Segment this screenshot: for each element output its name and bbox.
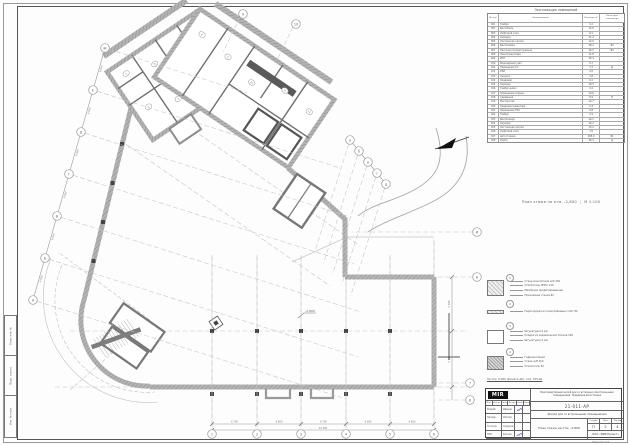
schedule-table: № пом.НаименованиеПлощадь, м²Категория п… [487, 13, 625, 143]
table-row: 026Лифтовой холл7,6 [488, 129, 624, 133]
table-row: 023Венткамера24,1 [488, 117, 624, 121]
svg-text:6: 6 [433, 432, 435, 436]
table-row: 020Кладовая инвентаря5,3 [488, 104, 624, 108]
stage-values: П24 [588, 424, 623, 430]
signature-row: Н.контр.Сидоров [486, 423, 530, 431]
table-row: 008Электрощитовая11,8 [488, 52, 624, 56]
table-row: 002Вестибюль15,6 [488, 26, 624, 30]
table-row: 028Рампа96,3Д [488, 138, 624, 142]
table-row: 007Насосная пожаротушения26,5В4 [488, 48, 624, 52]
svg-text:И: И [476, 230, 479, 234]
legend-swatch [487, 310, 504, 314]
svg-text:6 600: 6 600 [276, 421, 283, 424]
table-row: 022Тамбур2,9 [488, 112, 624, 116]
legend-labels: Штукатурка 5 ммКладка из керамических бл… [510, 329, 573, 343]
svg-text:1: 1 [211, 432, 213, 436]
table-row: 012КУИ4,5 [488, 69, 624, 73]
legend-swatch [487, 280, 504, 296]
plan-title-text: План этажа на отм. -2,800 [522, 200, 577, 204]
table-row: 019Мастерская14,7 [488, 99, 624, 103]
table-row: 018Серверная8,9В [488, 95, 624, 99]
title-block: MIR Изм.Кол.учЛист№ док.Подп.Дата Разраб… [485, 388, 622, 438]
svg-text:6 000: 6 000 [87, 107, 92, 115]
table-row: 021Помещение ТБО6,8 [488, 108, 624, 112]
table-row: 014Кладовая6,1 [488, 78, 624, 82]
table-row: 006Венткамера38,2В4 [488, 43, 624, 47]
svg-text:5 600: 5 600 [448, 355, 451, 362]
legend-item-number: 2 [506, 300, 514, 308]
separator: | [580, 200, 581, 204]
svg-text:6 000: 6 000 [75, 149, 80, 157]
side-stamp-cell: Инв. № подл. [5, 396, 16, 436]
table-row: 027Автостоянка485,0В1 [488, 134, 624, 138]
signature-row: ГИПКозлов [486, 431, 530, 439]
company-logo: MIR [488, 391, 508, 400]
svg-text:Ж: Ж [103, 46, 107, 50]
drawing-sheet: 1234567 89101112 [0, 0, 630, 445]
legend-labels: ГидроизоляцияСтена ж/б 200Утеплитель 50 [510, 355, 545, 369]
signature-rows: Разраб.ИвановПровер.ПетровН.контр.Сидоро… [486, 406, 530, 439]
svg-text:5: 5 [389, 432, 391, 436]
svg-text:6 750: 6 750 [320, 421, 327, 424]
beam-profile [438, 313, 460, 360]
svg-text:7: 7 [469, 381, 471, 385]
signature-row: Разраб.Иванов [486, 406, 530, 414]
project-description: Многоквартирный жилой дом со встроенно-п… [531, 389, 623, 402]
side-stamp-cell: Взам. инв. № [5, 316, 16, 356]
object-name: Жилой дом со встроенными помещениями [531, 411, 623, 419]
svg-text:6 600: 6 600 [409, 421, 416, 424]
legend-labels: Перегородка из пазогребневых плит 80 [510, 309, 578, 314]
table-row: 016Тамбур-шлюз4,2 [488, 86, 624, 90]
plan-title: План этажа на отм. -2,800|М 1:100 [500, 200, 622, 204]
svg-text:а: а [349, 138, 351, 142]
svg-text:в: в [367, 160, 369, 164]
table-row: 009ИТП30,4 [488, 56, 624, 60]
svg-text:6 000: 6 000 [51, 233, 56, 241]
svg-text:Г: Г [68, 172, 70, 176]
table-row: 003Лифтовой холл8,1 [488, 31, 624, 35]
document-number: 21-011-АР [531, 402, 623, 411]
svg-text:Е: Е [92, 88, 94, 92]
sheet-title: План этажа на отм. -2,800 [531, 419, 588, 439]
table-row: 015Коридор18,3 [488, 82, 624, 86]
elevation-note: За отм. 0,000 принята абс. отм. 155,00 [487, 377, 542, 381]
corner-column [209, 316, 223, 330]
table-row: 017Помещение охраны10,6 [488, 91, 624, 95]
table-row: 025Лестничная клетка13,4 [488, 125, 624, 129]
legend-swatch [487, 330, 504, 344]
table-row: 024Коридор16,2 [488, 121, 624, 125]
svg-text:2: 2 [256, 432, 258, 436]
room-schedule: Экспликация помещений № пом.Наименование… [487, 8, 625, 143]
legend-swatch [487, 356, 504, 370]
svg-text:10: 10 [294, 22, 298, 26]
table-row: 010Водомерный узел9,7 [488, 61, 624, 65]
schedule-header-row: № пом.НаименованиеПлощадь, м²Категория п… [488, 14, 624, 22]
svg-text:6 600: 6 600 [365, 421, 372, 424]
direction-arrow-icon [435, 137, 469, 149]
svg-text:г: г [376, 171, 378, 175]
svg-text:8: 8 [469, 398, 471, 402]
side-stamp: Взам. инв. №Подп. и датаИнв. № подл. [4, 315, 17, 438]
format-note: Формат А3 [592, 440, 609, 444]
stair-block [274, 174, 326, 228]
svg-text:3: 3 [300, 432, 302, 436]
svg-text:9: 9 [242, 12, 244, 16]
table-row: 005Лестничная клетка12,9 [488, 39, 624, 43]
table-row: 011Помещение СС7,2Д [488, 65, 624, 69]
legend-labels: Стена монолитная ж/б 250Утеплитель ЭППС … [510, 279, 563, 297]
svg-text:5 400: 5 400 [448, 300, 451, 307]
svg-text:Д: Д [80, 130, 83, 134]
organization-name: ООО «МИР-Проект» [588, 431, 623, 440]
side-stamp-cell: Подп. и дата [5, 356, 16, 396]
svg-text:6 000: 6 000 [39, 275, 44, 283]
svg-text:6 000: 6 000 [63, 191, 68, 199]
svg-text:6 000: 6 000 [99, 65, 104, 73]
table-row: 004Коридор21,4 [488, 35, 624, 39]
svg-text:33 300: 33 300 [319, 427, 328, 430]
plan-scale: М 1:100 [584, 200, 600, 204]
svg-text:6 750: 6 750 [231, 421, 238, 424]
signature-row: Провер.Петров [486, 414, 530, 422]
svg-text:-2,800: -2,800 [305, 309, 315, 313]
overhang-outline [292, 237, 434, 262]
table-row: 013Санузел3,8 [488, 74, 624, 78]
svg-text:4: 4 [345, 432, 347, 436]
stage-header: СтадияЛистЛистов [588, 419, 623, 423]
svg-text:б: б [358, 149, 360, 153]
table-row: 001Тамбур3,2 [488, 22, 624, 26]
